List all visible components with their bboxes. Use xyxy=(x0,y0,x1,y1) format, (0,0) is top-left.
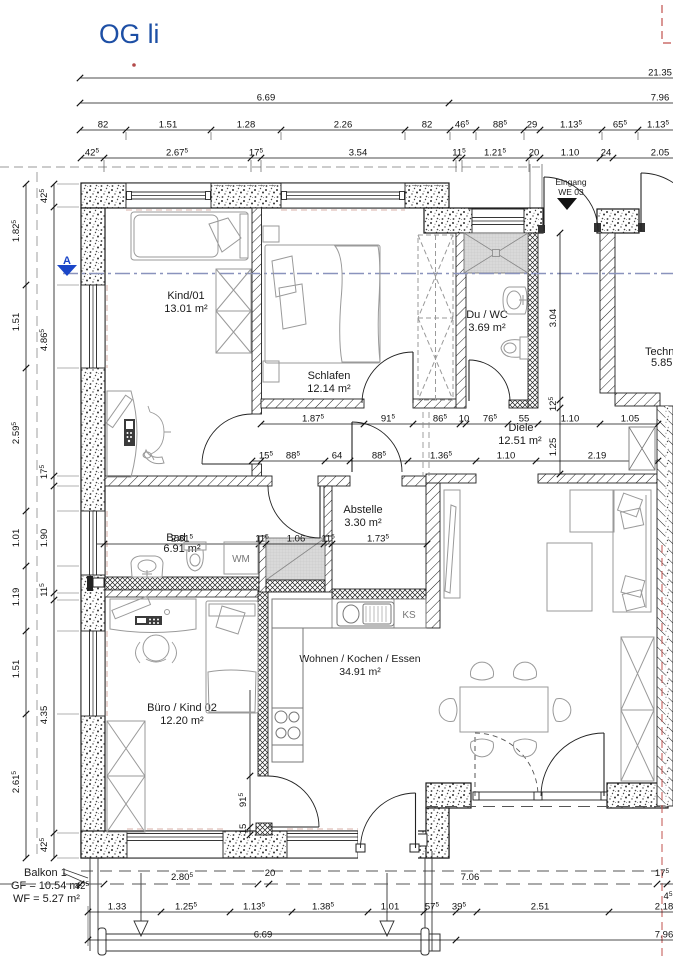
svg-text:21.35: 21.35 xyxy=(648,68,672,79)
svg-text:WF = 5.27 m²: WF = 5.27 m² xyxy=(13,893,80,905)
svg-text:10: 10 xyxy=(459,414,470,425)
svg-text:1.25: 1.25 xyxy=(548,438,559,457)
svg-text:64: 64 xyxy=(332,451,343,462)
svg-text:20: 20 xyxy=(529,148,540,159)
svg-text:KS: KS xyxy=(402,610,416,621)
svg-text:1.05: 1.05 xyxy=(621,414,640,425)
svg-text:3.30 m²: 3.30 m² xyxy=(344,517,382,529)
svg-text:Wohnen / Kochen / Essen: Wohnen / Kochen / Essen xyxy=(299,653,420,665)
svg-text:3.69 m²: 3.69 m² xyxy=(468,322,506,334)
svg-text:1.90: 1.90 xyxy=(39,529,50,548)
svg-text:12.14 m²: 12.14 m² xyxy=(307,383,351,395)
svg-text:13.01 m²: 13.01 m² xyxy=(164,303,208,315)
svg-text:2.19: 2.19 xyxy=(588,451,607,462)
svg-text:2.51: 2.51 xyxy=(531,902,550,913)
svg-text:82: 82 xyxy=(422,120,433,131)
svg-text:OG li: OG li xyxy=(99,19,159,49)
svg-text:3.04: 3.04 xyxy=(548,309,559,328)
svg-text:2.26: 2.26 xyxy=(334,120,353,131)
svg-text:1.10: 1.10 xyxy=(497,451,516,462)
svg-text:2.18: 2.18 xyxy=(655,902,673,913)
svg-text:1.10: 1.10 xyxy=(561,414,580,425)
svg-text:1.51: 1.51 xyxy=(159,120,178,131)
svg-text:4.35: 4.35 xyxy=(39,706,50,725)
svg-text:Schlafen: Schlafen xyxy=(308,370,351,382)
svg-text:1.01: 1.01 xyxy=(11,529,22,548)
svg-text:12.20 m²: 12.20 m² xyxy=(160,715,204,727)
svg-text:24: 24 xyxy=(601,148,612,159)
svg-text:GF = 10.54 m²: GF = 10.54 m² xyxy=(11,880,83,892)
svg-text:7.06: 7.06 xyxy=(461,872,480,883)
svg-text:1.51: 1.51 xyxy=(11,313,22,332)
svg-text:7.96: 7.96 xyxy=(655,930,673,941)
svg-text:3.54: 3.54 xyxy=(349,148,368,159)
svg-text:2.05: 2.05 xyxy=(651,148,670,159)
svg-text:WE 03: WE 03 xyxy=(558,187,584,197)
svg-text:6.91 m²: 6.91 m² xyxy=(163,543,201,555)
svg-text:1.28: 1.28 xyxy=(237,120,256,131)
svg-text:Abstelle: Abstelle xyxy=(343,504,382,516)
svg-text:1.01: 1.01 xyxy=(381,902,400,913)
svg-text:Kind/01: Kind/01 xyxy=(167,290,204,302)
svg-text:15: 15 xyxy=(238,824,249,835)
svg-text:1.33: 1.33 xyxy=(108,902,127,913)
svg-text:Du / WC: Du / WC xyxy=(466,309,508,321)
svg-text:Balkon 1: Balkon 1 xyxy=(24,867,67,879)
svg-text:1.19: 1.19 xyxy=(11,588,22,607)
svg-text:Eingang: Eingang xyxy=(555,177,586,187)
svg-text:6.69: 6.69 xyxy=(257,93,276,104)
svg-text:34.91 m²: 34.91 m² xyxy=(339,666,381,678)
svg-text:7.96: 7.96 xyxy=(651,93,670,104)
svg-text:5.85 m²: 5.85 m² xyxy=(651,357,673,369)
svg-text:20: 20 xyxy=(265,868,276,879)
svg-text:WM: WM xyxy=(232,554,250,565)
svg-text:82: 82 xyxy=(98,120,109,131)
svg-text:1.51: 1.51 xyxy=(11,660,22,679)
svg-text:1.10: 1.10 xyxy=(561,148,580,159)
svg-text:6.69: 6.69 xyxy=(254,930,273,941)
svg-text:55: 55 xyxy=(519,414,530,425)
svg-text:1.06: 1.06 xyxy=(287,534,306,545)
svg-text:12.51 m²: 12.51 m² xyxy=(498,435,542,447)
svg-text:29: 29 xyxy=(527,120,538,131)
